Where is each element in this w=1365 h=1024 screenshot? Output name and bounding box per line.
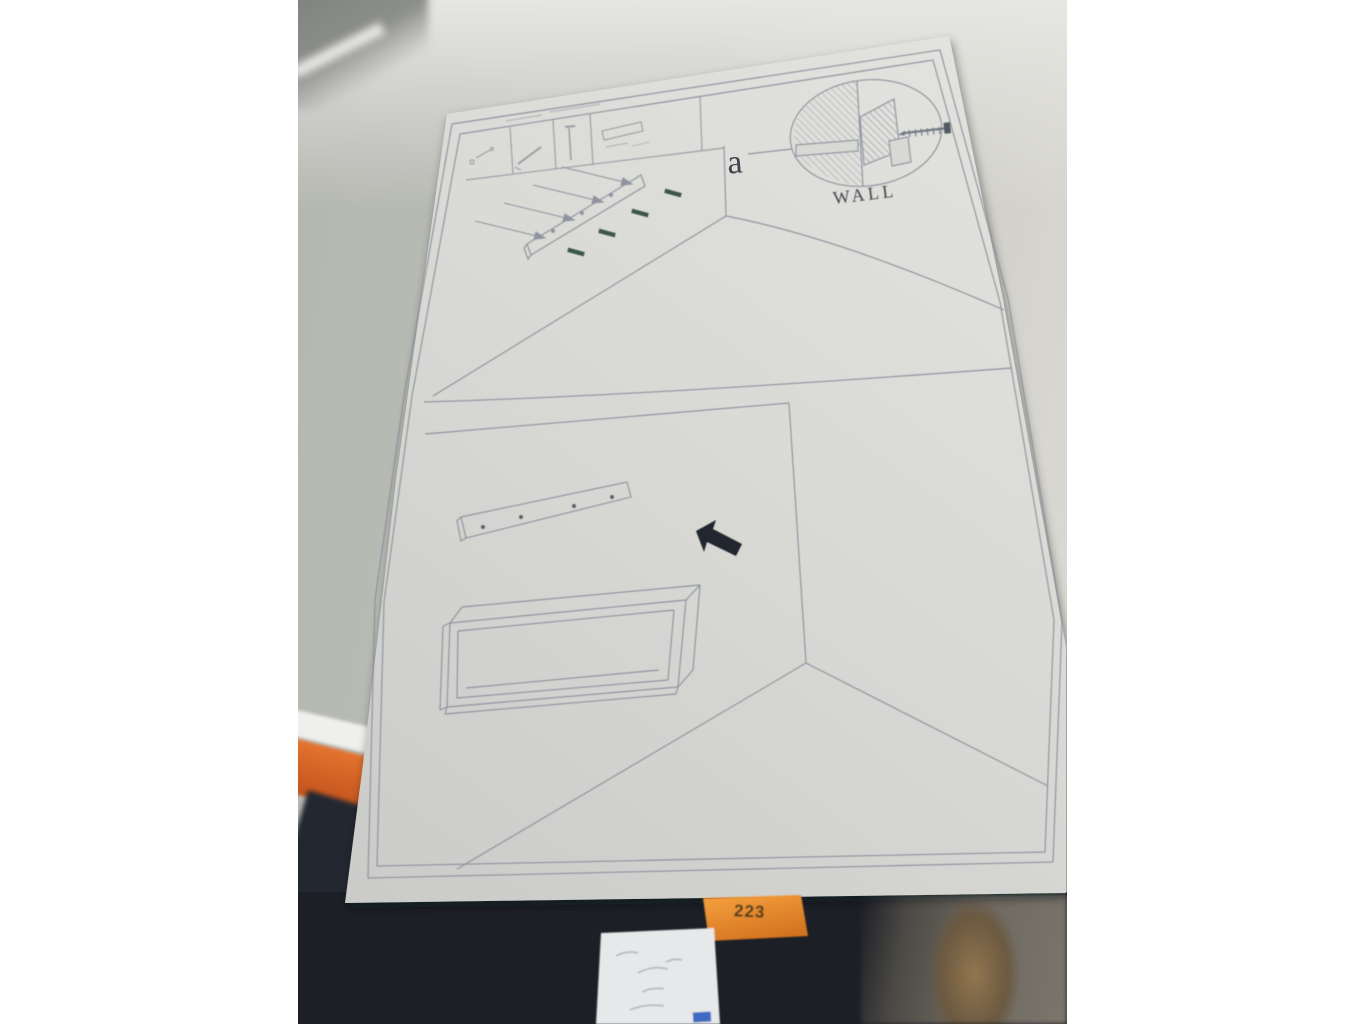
- sticky-note: 223: [703, 895, 808, 941]
- sticky-note-text: 223: [734, 901, 766, 922]
- anchor-block: [889, 137, 911, 166]
- instruction-sheet-svg: a WALL 223: [298, 0, 1067, 1024]
- photo-scene: a WALL 223: [0, 0, 1365, 1024]
- instruction-sheet-paper: [345, 36, 1066, 903]
- photograph: a WALL 223: [298, 0, 1067, 1024]
- blue-sticker: [693, 1012, 711, 1023]
- handwritten-note: [596, 928, 720, 1024]
- step-letter: a: [726, 143, 744, 181]
